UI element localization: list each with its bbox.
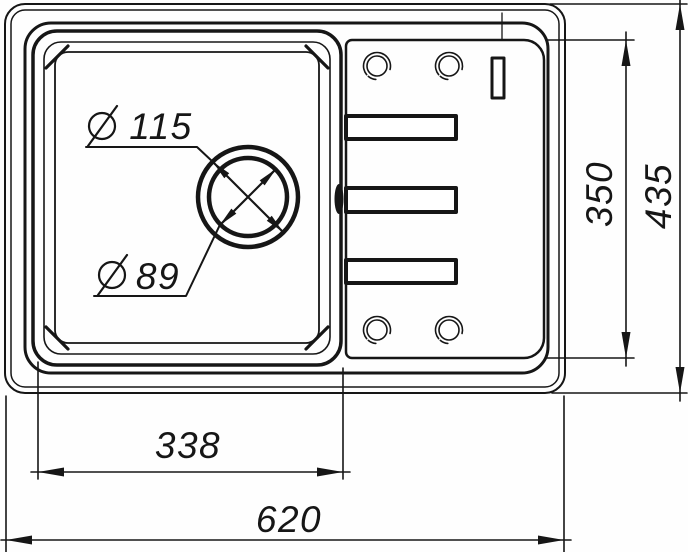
diameter-symbol-icon — [98, 255, 127, 295]
drainer-rib — [346, 260, 456, 283]
overflow-hole — [335, 184, 344, 214]
tap-hole — [435, 316, 462, 343]
label-bowl-width: 338 — [155, 425, 221, 466]
drawing-canvas: 115 89 350 435 338 620 — [0, 0, 688, 552]
tap-hole — [363, 316, 390, 343]
label-overall-height: 435 — [638, 163, 679, 229]
drainer-rib — [346, 188, 456, 212]
label-drain-inner-diameter: 89 — [136, 256, 180, 297]
drainboard-slot — [492, 58, 504, 98]
diameter-symbol-icon — [88, 106, 117, 146]
sink-technical-drawing: 115 89 350 435 338 620 — [0, 0, 688, 552]
tap-hole — [363, 52, 390, 79]
label-drain-outer-diameter: 115 — [129, 106, 193, 147]
label-overall-width: 620 — [256, 499, 322, 540]
drainboard — [346, 13, 544, 358]
drainer-rib — [346, 116, 456, 139]
tap-hole — [435, 52, 462, 79]
label-drainboard-height: 350 — [579, 161, 620, 227]
